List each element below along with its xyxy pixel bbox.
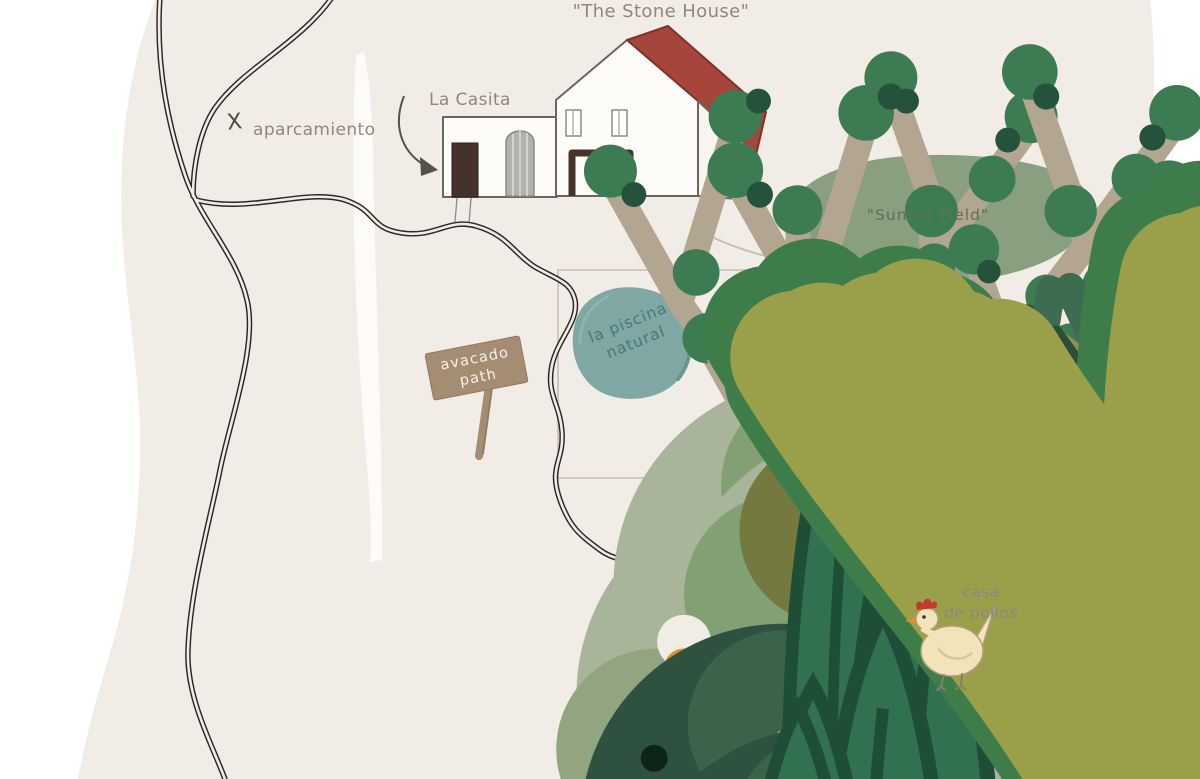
casita-door <box>452 143 478 197</box>
illustrated-farm-map: "The Stone House" La Casita X aparcamien… <box>0 0 1200 779</box>
chicken-house-label: casa de pollos <box>925 582 1037 624</box>
parking-x-marker: X <box>226 109 244 135</box>
chicken-house-label-line2: de pollos <box>925 603 1037 624</box>
la-casita-label: La Casita <box>429 90 511 110</box>
sign-post <box>479 386 492 456</box>
map-artwork <box>0 0 1200 779</box>
sunset-field-label: "Sunset Field" <box>833 206 1023 224</box>
stone-house-label: "The Stone House" <box>551 1 771 22</box>
parking-label: aparcamiento <box>253 120 375 140</box>
chicken-house-label-line1: casa <box>925 582 1037 603</box>
